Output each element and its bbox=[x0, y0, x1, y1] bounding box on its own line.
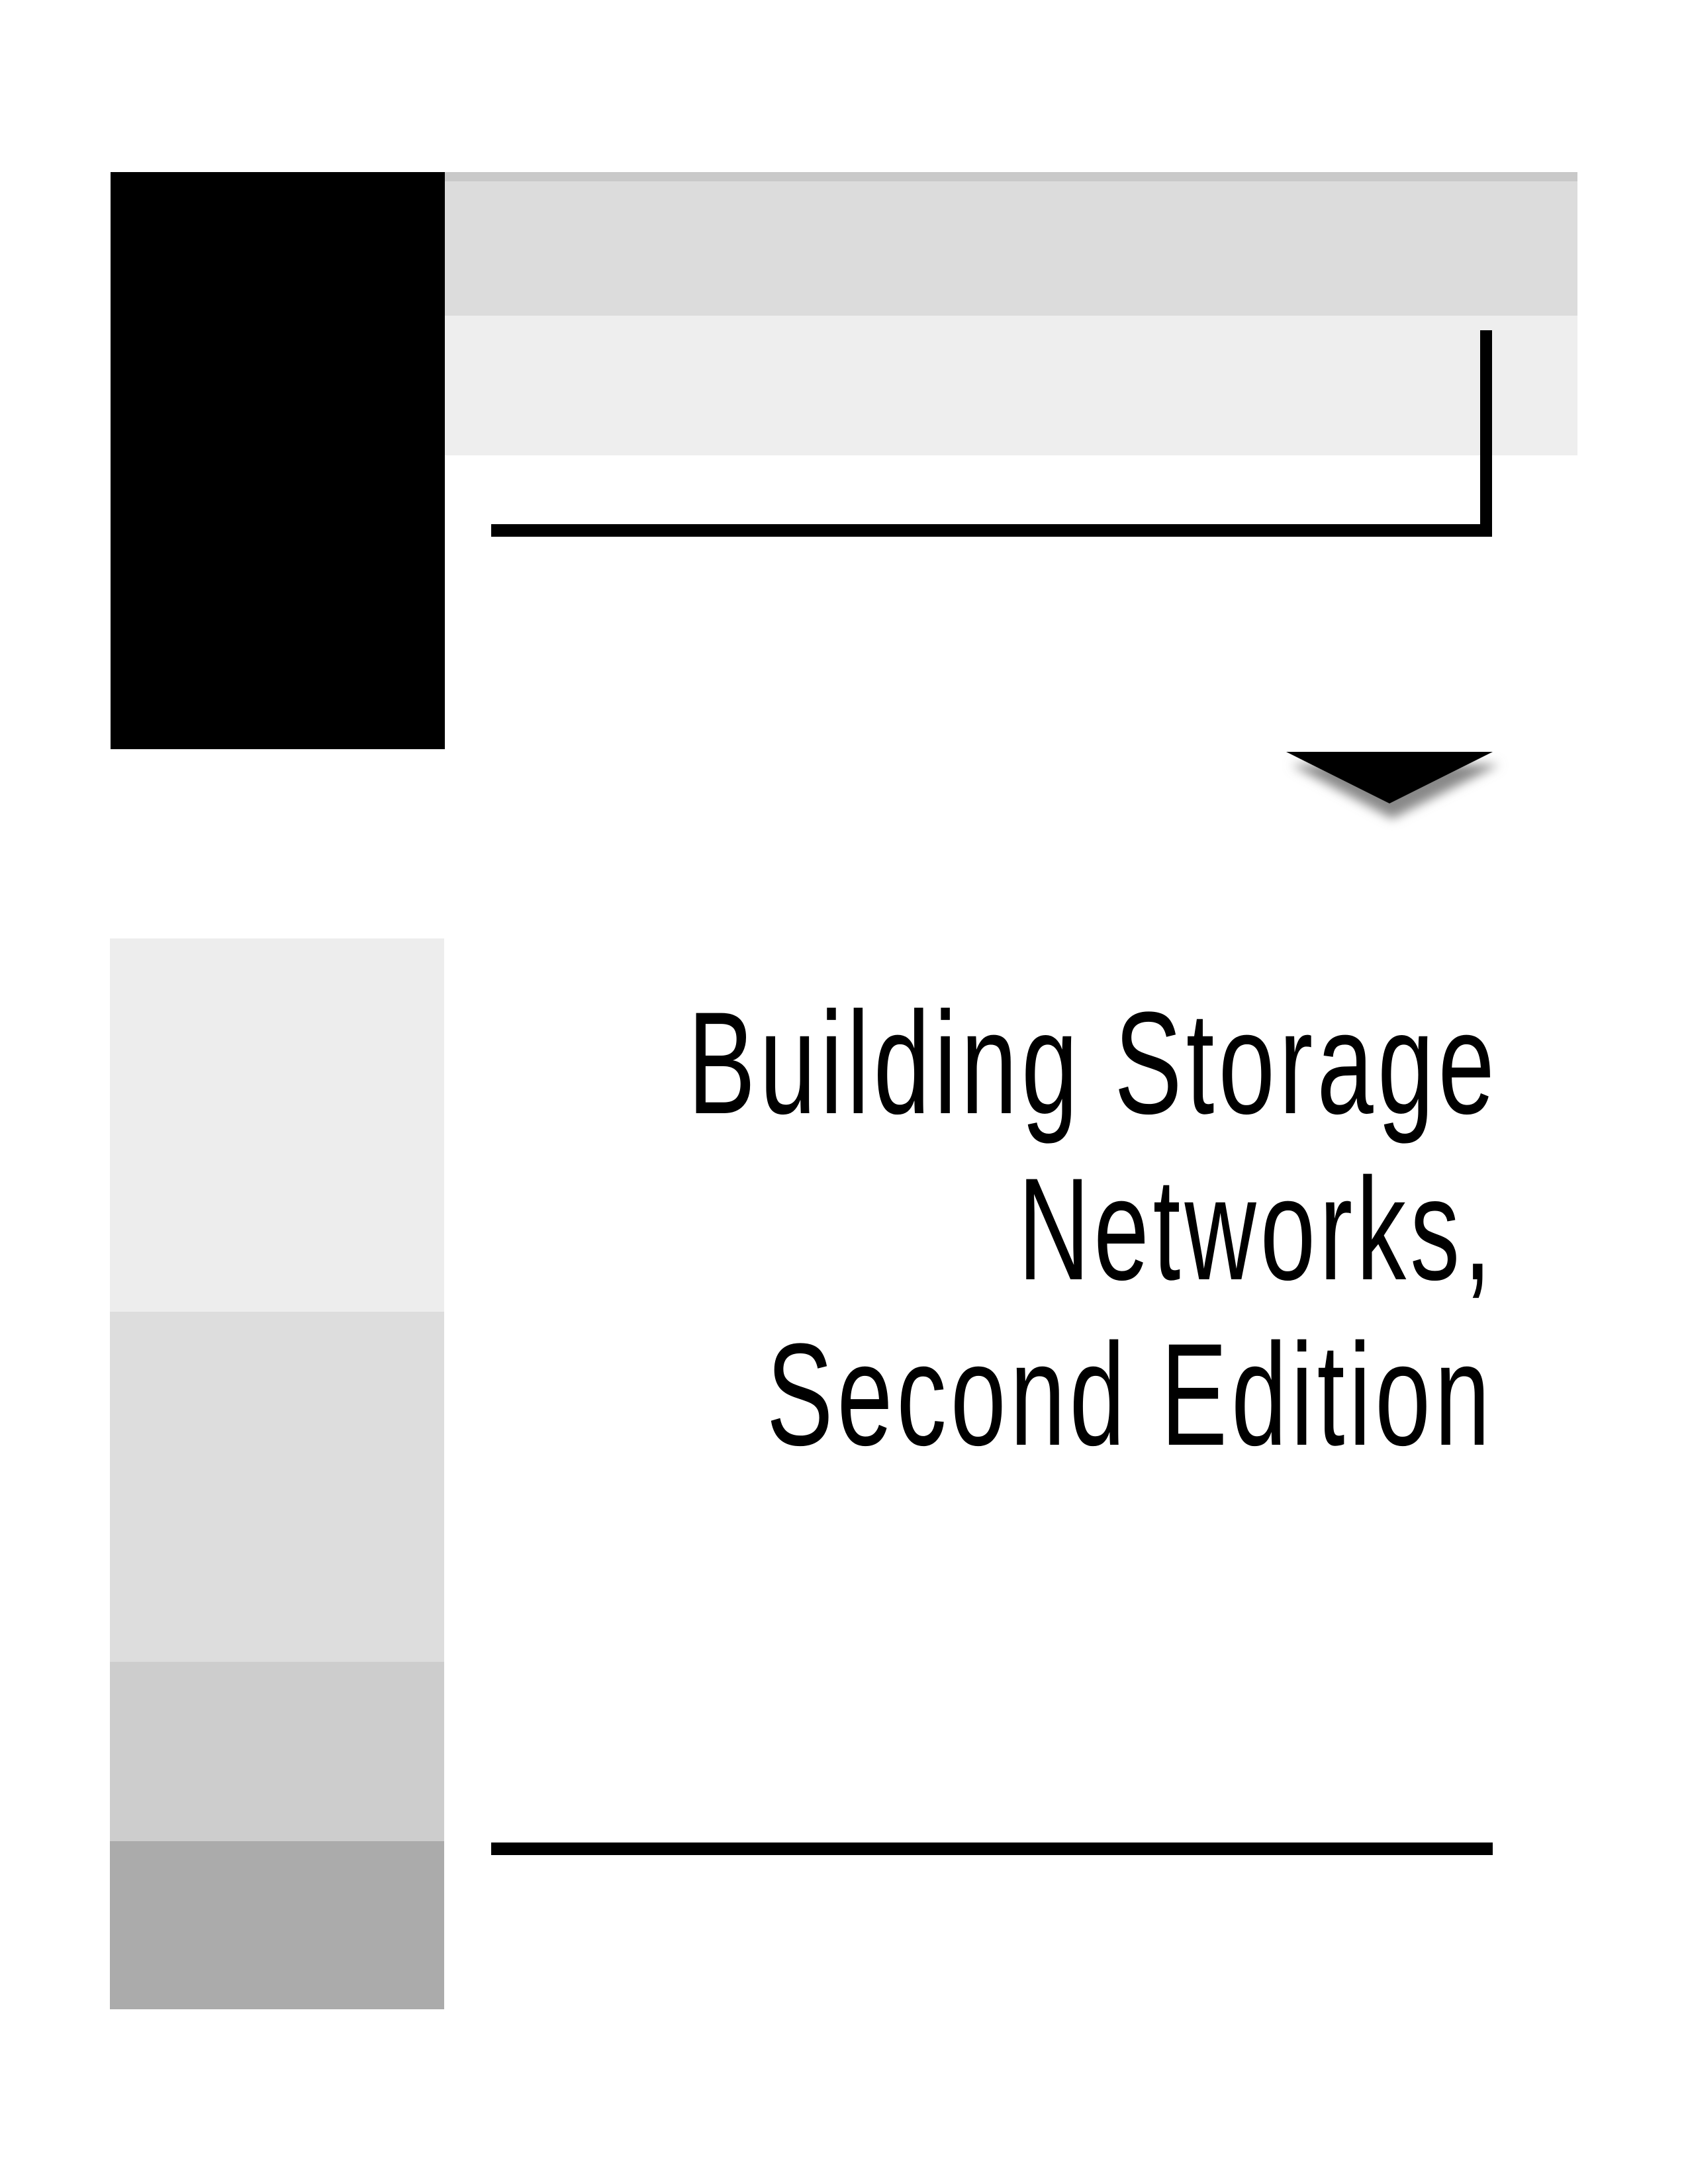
svg-text:Networks,: Networks, bbox=[1018, 1148, 1495, 1310]
svg-text:Second Edition: Second Edition bbox=[767, 1313, 1494, 1476]
svg-text:Building Storage: Building Storage bbox=[688, 981, 1499, 1144]
